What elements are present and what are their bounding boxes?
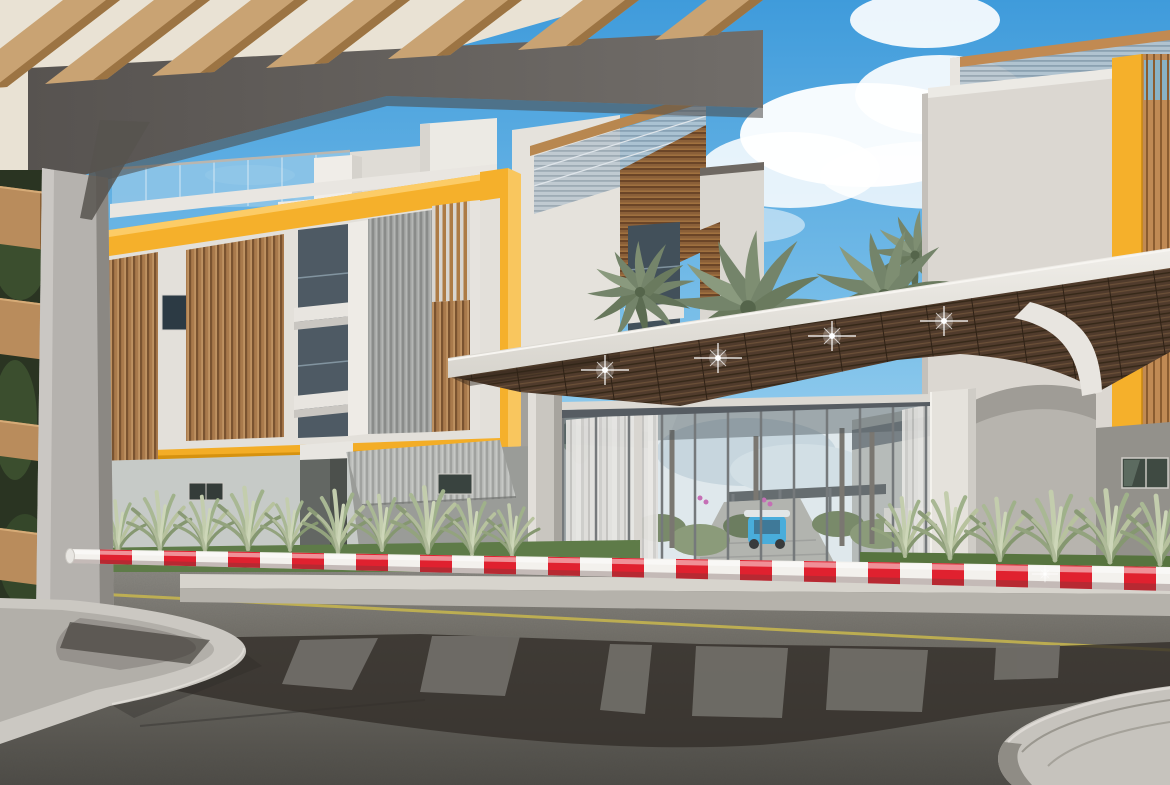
corrugated-panel	[368, 210, 432, 434]
wood-slat-panel-c-upper	[432, 201, 470, 302]
wood-slat-panel-b	[186, 234, 284, 441]
barrier-end-cap	[66, 549, 75, 564]
render-scene	[0, 0, 1170, 785]
balcony-recess	[294, 224, 352, 438]
render-viewport	[0, 0, 1170, 785]
facade-window-1	[162, 295, 187, 330]
